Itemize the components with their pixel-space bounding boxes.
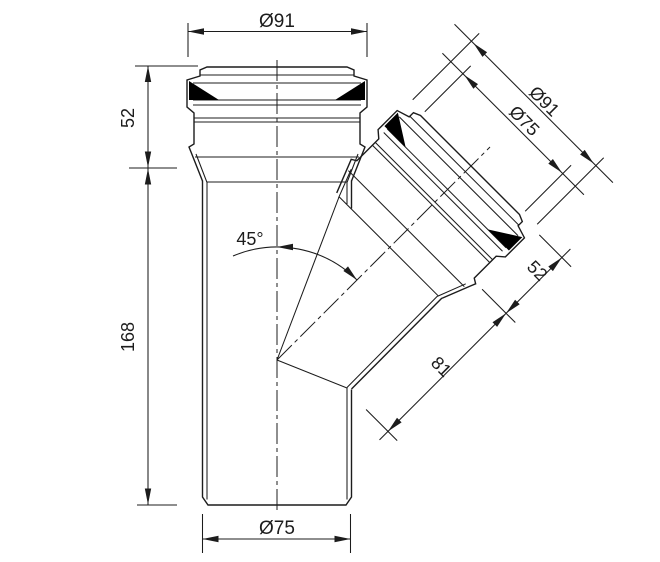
dimension-branch-angle: 45° bbox=[233, 229, 357, 280]
centerlines bbox=[277, 60, 490, 511]
dim-label-bottom-diameter: Ø75 bbox=[259, 518, 295, 539]
drawing-sheet: Ø91 52 168 Ø75 45° Ø91 bbox=[0, 0, 660, 562]
dimension-top-diameter: Ø91 bbox=[188, 11, 367, 57]
fitting-body bbox=[187, 67, 534, 505]
dim-label-branch-socket-depth: 52 bbox=[523, 257, 551, 285]
dimension-branch-inner-diameter: Ø75 bbox=[425, 53, 584, 211]
dim-label-main-socket-depth: 52 bbox=[118, 108, 138, 128]
dim-label-top-diameter: Ø91 bbox=[259, 11, 295, 32]
branch-axis-centerline bbox=[277, 147, 490, 360]
branch-tube bbox=[347, 296, 442, 389]
dim-label-branch-tube-length: 81 bbox=[427, 353, 455, 381]
dimension-left-stack: 52 168 bbox=[118, 66, 198, 505]
dim-label-branch-angle: 45° bbox=[236, 229, 263, 249]
technical-drawing-45deg-branch-fitting: Ø91 52 168 Ø75 45° Ø91 bbox=[0, 0, 660, 562]
dimension-bottom-diameter: Ø75 bbox=[203, 514, 351, 553]
dim-label-main-body-length: 168 bbox=[118, 322, 138, 352]
junction-crotch-lines bbox=[277, 197, 347, 388]
